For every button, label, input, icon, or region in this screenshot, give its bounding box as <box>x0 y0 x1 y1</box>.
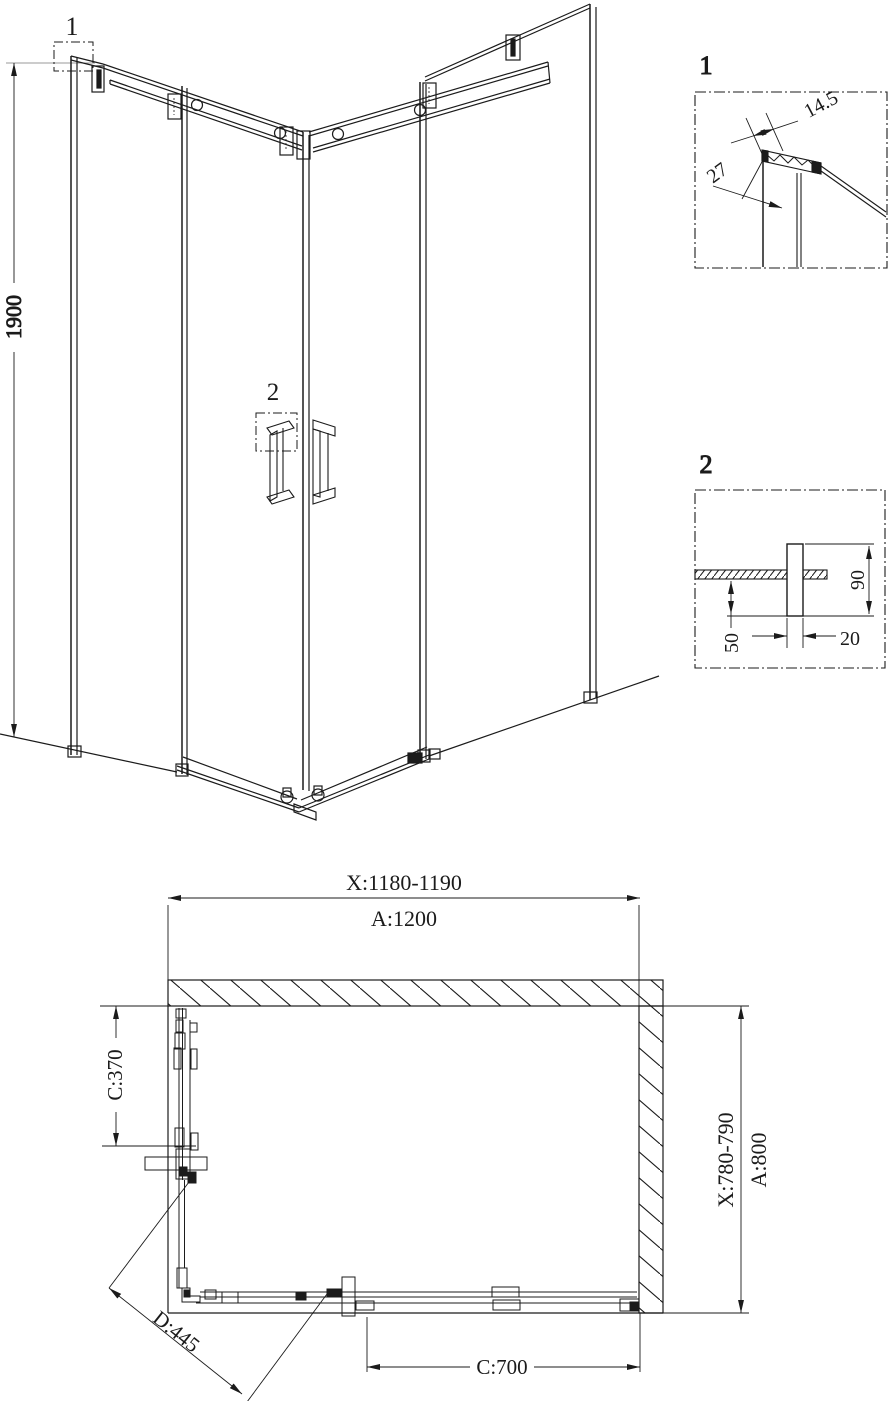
roller-wheel <box>333 129 344 140</box>
shower-enclosure-drawing: 1900 1 <box>0 0 889 1401</box>
plan-bottom-door <box>196 1277 639 1316</box>
detail-2-label: 2 <box>700 450 713 479</box>
left-top-rail <box>92 64 303 150</box>
dim-90-label: 90 <box>847 570 869 590</box>
glass-edge-lines <box>763 161 801 267</box>
plan-view: X:1180-1190 A:1200 X:780-790 A:800 C:370… <box>100 870 771 1401</box>
dim-20: 20 <box>752 618 860 650</box>
left-door-handle <box>267 421 294 504</box>
dim-27-label: 27 <box>703 158 732 188</box>
wall-bracket <box>92 66 104 92</box>
dim-27: 27 <box>703 158 782 208</box>
detail-view-2: 2 90 50 20 <box>695 450 885 668</box>
bottom-rails <box>0 676 659 820</box>
dim-height-label: 1900 <box>1 295 26 339</box>
rail-end-block <box>408 753 422 763</box>
dim-50-label: 50 <box>721 633 743 653</box>
roller-wheel <box>192 100 203 111</box>
plan-width-range-label: X:1180-1190 <box>346 870 462 895</box>
top-wall <box>168 980 663 1006</box>
plan-left-handle <box>145 1149 207 1179</box>
plan-d445-dimension: D:445 <box>109 1178 327 1401</box>
wall-bracket <box>506 35 520 60</box>
plan-depth-nominal-label: A:800 <box>746 1133 771 1188</box>
plan-depth-range-label: X:780-790 <box>713 1112 738 1207</box>
plan-c370-dimension: C:370 <box>100 1006 196 1146</box>
rail-perspective-lines <box>821 166 886 217</box>
left-fixed-panel <box>68 56 103 757</box>
detail-view-1: 1 14.5 27 <box>695 51 887 268</box>
plan-right-dimension: X:780-790 A:800 <box>663 1006 771 1313</box>
height-dimension: 1900 <box>1 63 95 737</box>
right-door-handle <box>313 420 335 504</box>
right-door <box>313 82 430 762</box>
right-wall <box>639 1006 663 1313</box>
d445-leader-left <box>109 1178 192 1288</box>
d445-leader-right <box>247 1294 327 1401</box>
right-fixed-panel <box>425 4 597 703</box>
dim-50: 50 <box>721 581 743 653</box>
plan-c700-label: C:700 <box>476 1355 527 1379</box>
perspective-view: 1900 1 <box>0 4 659 820</box>
plan-c700-dimension: C:700 <box>367 1313 640 1379</box>
callout-1-label: 1 <box>66 12 79 41</box>
detail-1-label: 1 <box>700 51 713 80</box>
plan-width-nominal-label: A:1200 <box>371 906 437 931</box>
dim-20-label: 20 <box>840 628 860 650</box>
dim-14-5: 14.5 <box>731 87 842 156</box>
plan-left-door <box>145 1008 207 1302</box>
left-door <box>176 86 294 776</box>
plan-c370-label: C:370 <box>103 1049 127 1100</box>
rail-profile-section <box>762 150 821 174</box>
handle-section <box>787 544 803 616</box>
callout-2-label: 2 <box>267 379 280 406</box>
glass-panel-section <box>695 570 827 579</box>
corner-post <box>280 127 310 791</box>
technical-drawing-page: 1900 1 <box>0 0 889 1401</box>
callout-1: 1 <box>54 12 93 71</box>
